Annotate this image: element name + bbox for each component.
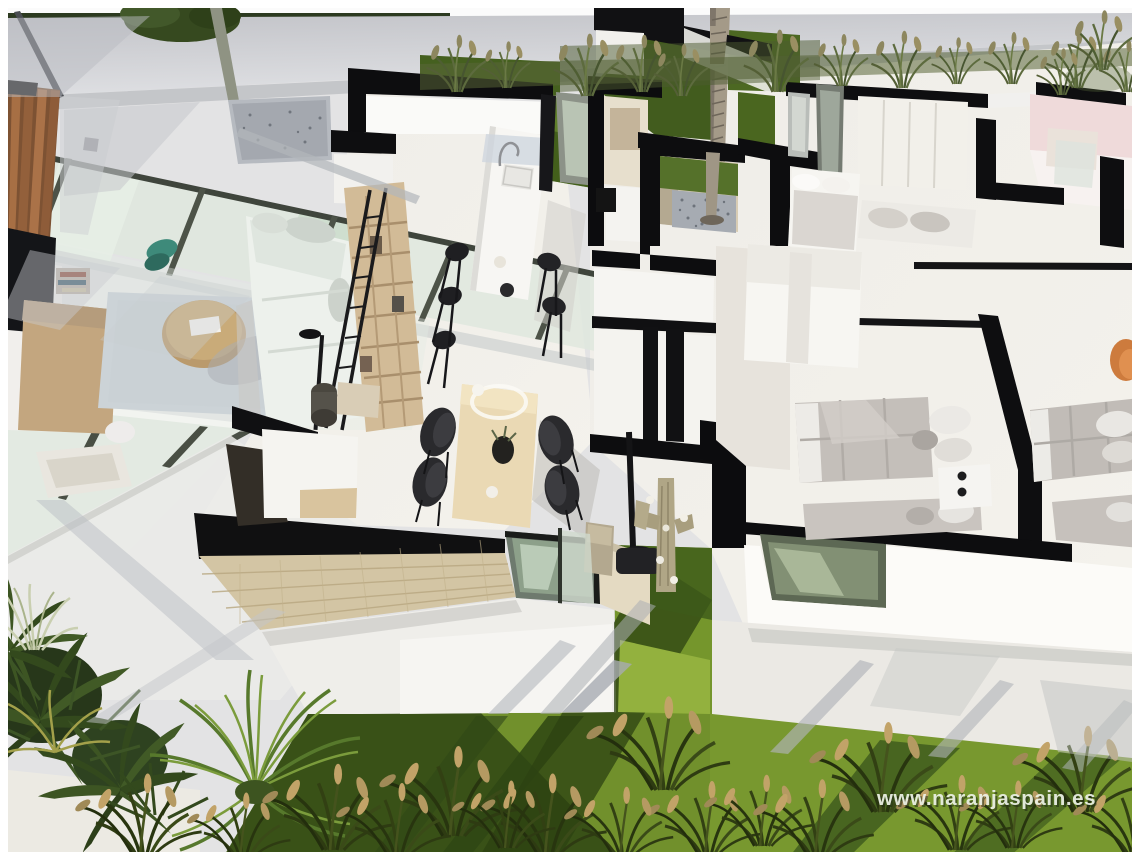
svg-text:www.naranjaspain.es: www.naranjaspain.es (876, 787, 1096, 810)
